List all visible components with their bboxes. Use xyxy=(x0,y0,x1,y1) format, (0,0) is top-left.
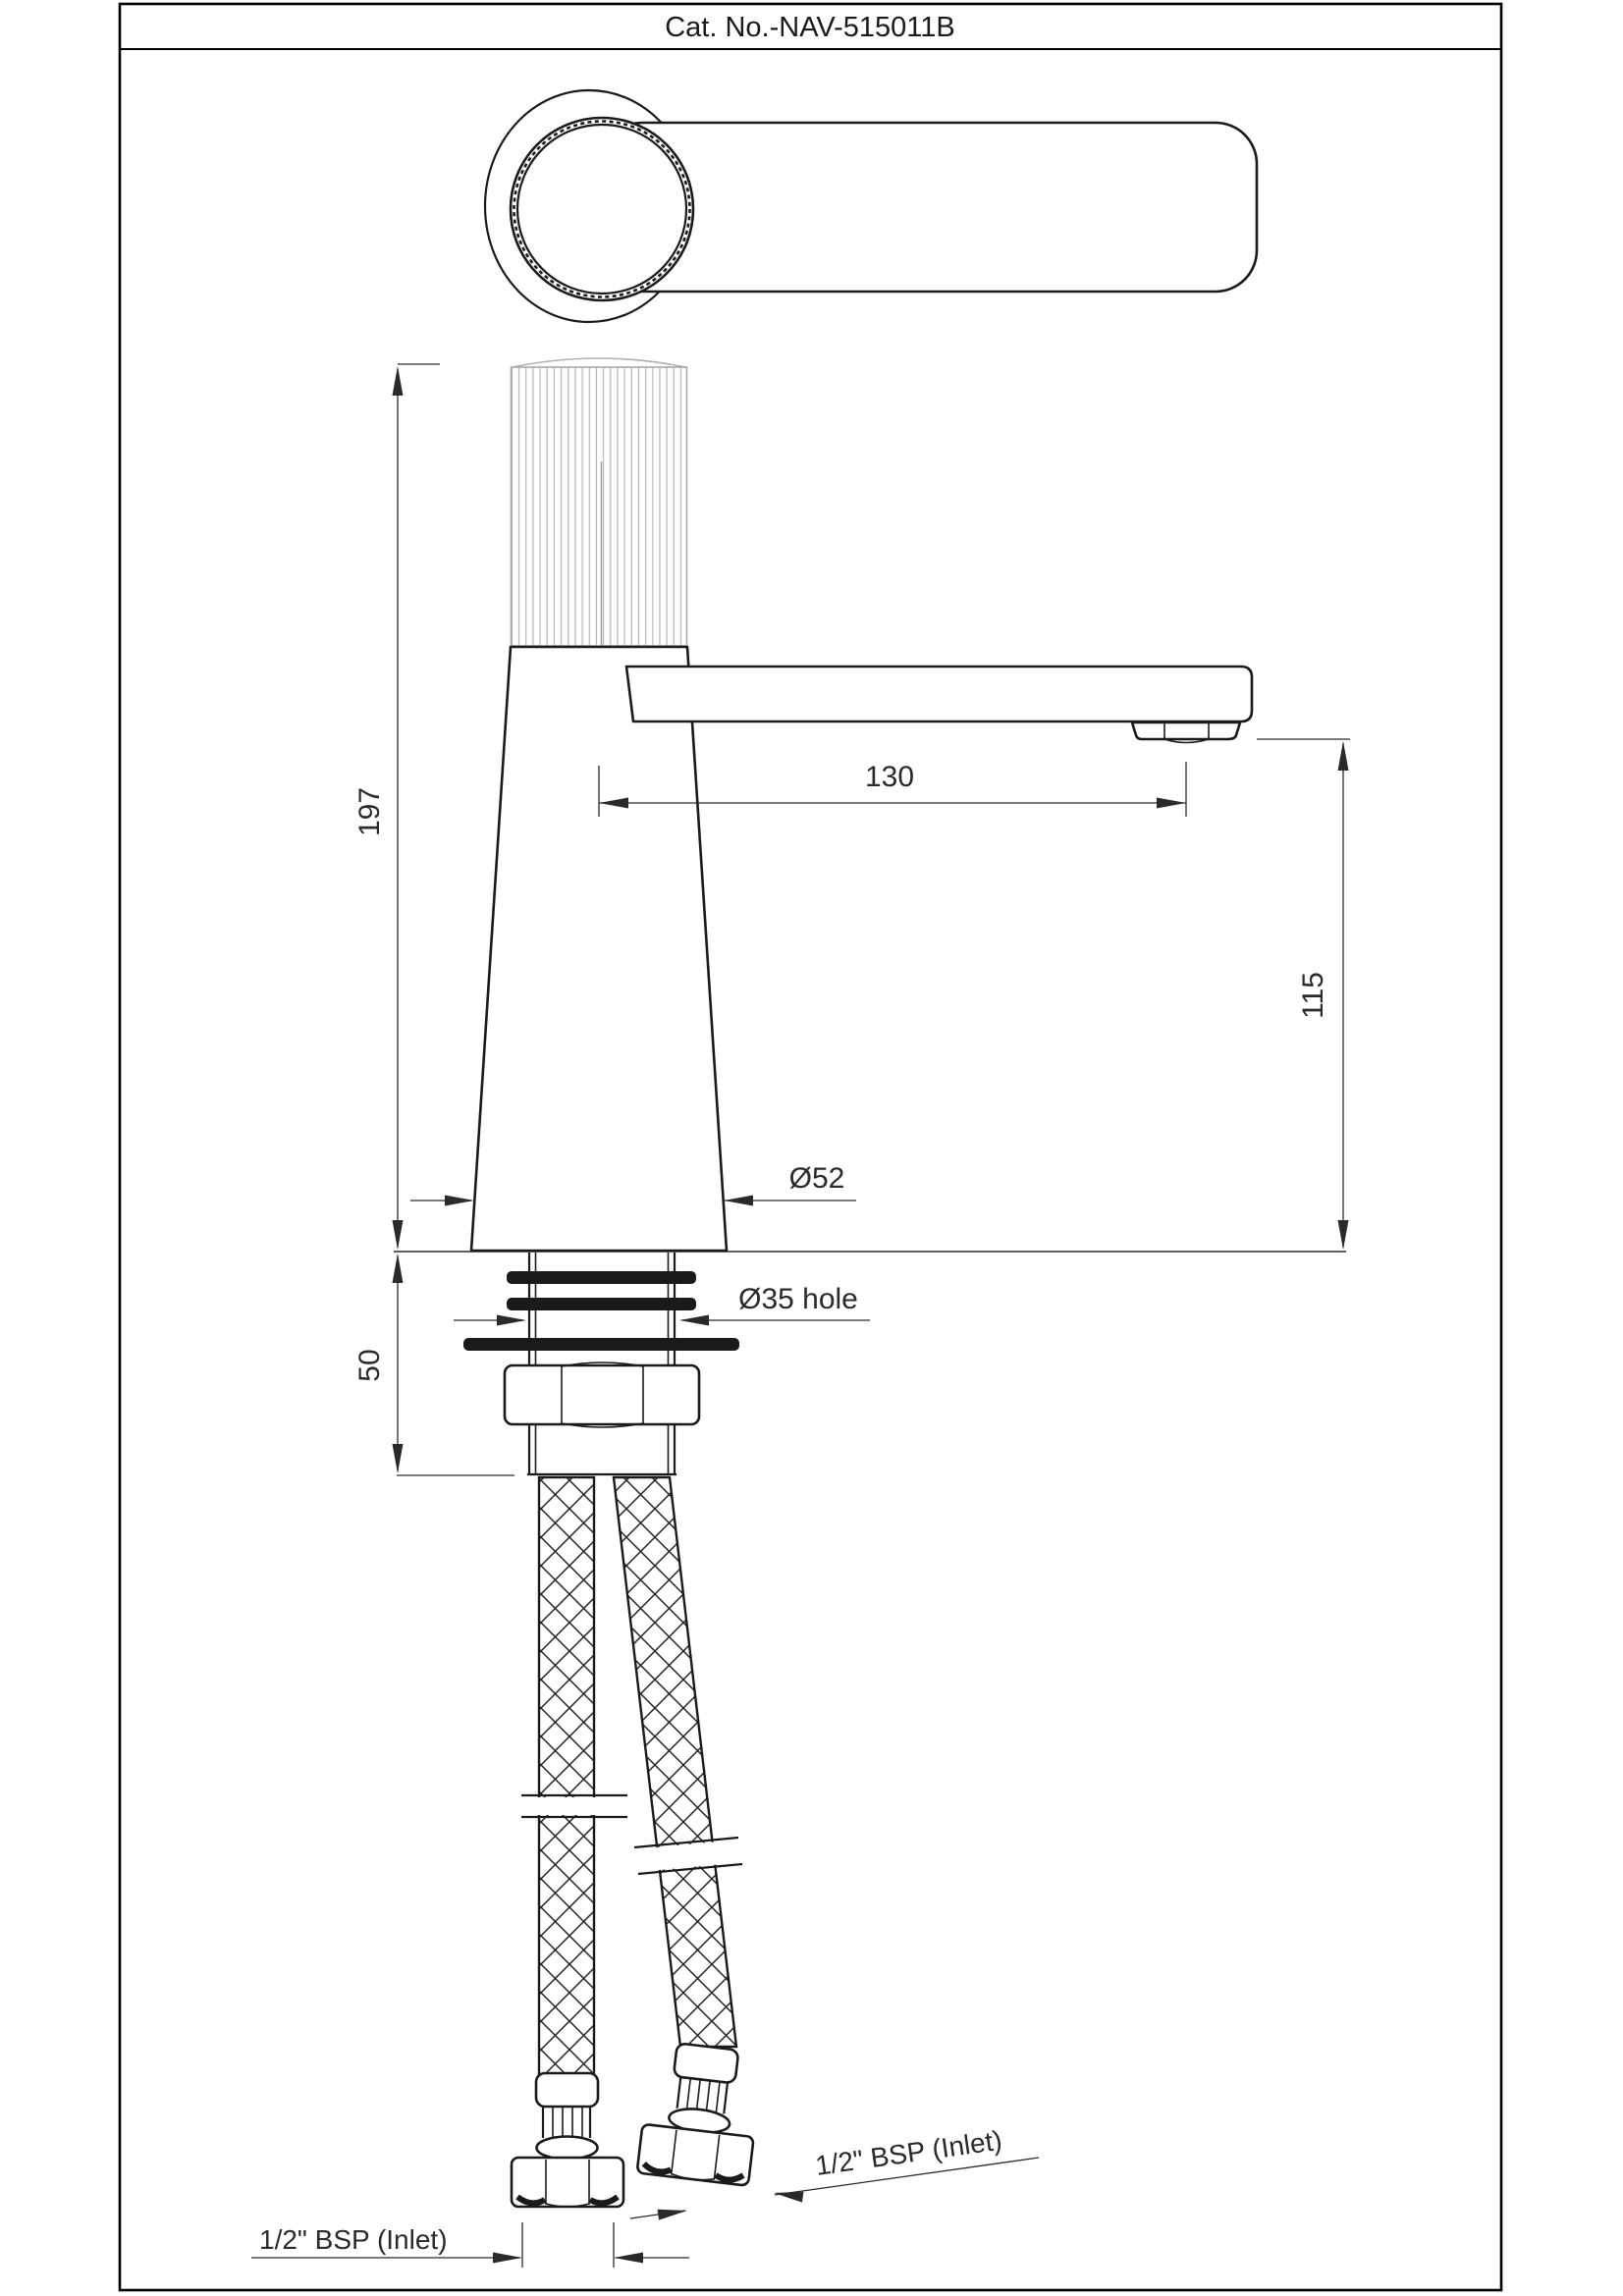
dim-label-197: 197 xyxy=(353,787,386,836)
dim-spout-height: 115 xyxy=(1257,739,1350,1250)
supply-hose-left xyxy=(521,1477,634,2076)
handle-knurl xyxy=(512,358,687,646)
o-ring-gasket-2 xyxy=(507,1298,696,1310)
catalog-number: Cat. No.-NAV-515011B xyxy=(665,12,955,43)
dim-label-115: 115 xyxy=(1297,972,1329,1019)
dim-inlet-left: 1/2" BSP (Inlet) xyxy=(251,2222,689,2268)
faucet-front-view xyxy=(394,358,1346,2207)
mounting-nut xyxy=(505,1362,699,1427)
dim-label-d35: Ø35 hole xyxy=(738,1283,858,1315)
page-border xyxy=(120,4,1501,2290)
handle-top-view xyxy=(485,90,1257,322)
hose-fitting-right xyxy=(637,2040,764,2185)
dim-label-50: 50 xyxy=(353,1349,386,1381)
dim-total-height: 197 xyxy=(353,364,440,1250)
dim-label-130: 130 xyxy=(865,761,914,793)
lever-handle xyxy=(601,123,1257,292)
faucet-body xyxy=(471,647,727,1251)
hose-fitting-left xyxy=(512,2073,623,2207)
supply-hose-right xyxy=(614,1477,743,2047)
drawing-page: Cat. No.-NAV-515011B xyxy=(0,0,1623,2296)
dim-label-d52: Ø52 xyxy=(789,1162,845,1195)
dim-base-depth: 50 xyxy=(353,1254,514,1475)
deck-washer xyxy=(463,1338,739,1351)
aerator xyxy=(1132,722,1240,743)
spout xyxy=(626,667,1252,721)
technical-drawing: Cat. No.-NAV-515011B xyxy=(0,0,1623,2296)
title-bar: Cat. No.-NAV-515011B xyxy=(665,12,955,43)
knurl-ring-outer xyxy=(511,118,693,300)
o-ring-gasket-1 xyxy=(507,1271,696,1284)
inlet-label-left: 1/2" BSP (Inlet) xyxy=(259,2224,448,2255)
mounting-shank xyxy=(527,1253,676,1474)
inlet-label-right: 1/2" BSP (Inlet) xyxy=(814,2125,1004,2181)
